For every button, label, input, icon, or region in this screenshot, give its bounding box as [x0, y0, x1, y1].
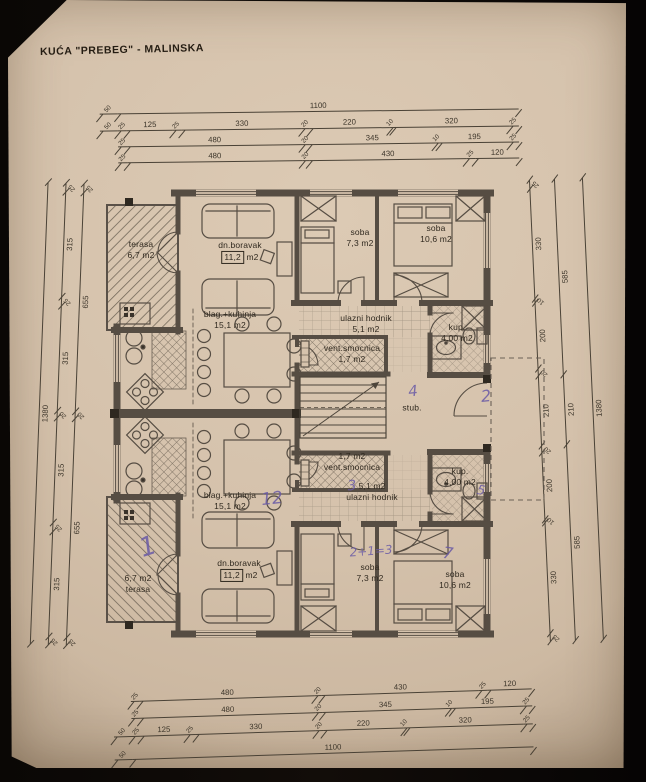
dim-segment: 25 [478, 679, 487, 691]
dim-segment: 430 [322, 679, 479, 696]
dim-value: 345 [379, 701, 392, 709]
dim-value: 25 [132, 727, 141, 736]
dim-value: 25 [523, 715, 532, 724]
dim-value: 320 [445, 117, 458, 125]
room-area: 4,00 m2 [441, 333, 473, 344]
dim-value: 345 [366, 134, 379, 142]
dim-value: 1100 [325, 743, 342, 751]
dim-value: 25 [130, 692, 139, 701]
dim-value: 10 [432, 134, 441, 143]
dim-segment: 125 [127, 119, 173, 132]
dim-value: 25 [466, 149, 475, 158]
room-label-pantry-lower: 1,7 m2 vent.smocnica [324, 451, 380, 473]
dim-segment: 50 [114, 748, 133, 761]
pen-mark-bedroom-small: 2+1=3 [349, 543, 393, 560]
sofa [202, 204, 274, 238]
paper-sheet: KUĆA "PREBEG" - MALINSKA 501100 50251252… [8, 0, 626, 768]
room-label-livingroom-lower: dn.boravak 11,2 m2 [217, 558, 261, 582]
room-label-livingroom-upper: dn.boravak 11,2 m2 [218, 240, 262, 264]
balcony-dashed-outline [491, 358, 544, 500]
room-name: terasa [125, 584, 152, 595]
dim-value: 20 [77, 410, 86, 419]
dim-segment: 10 [448, 697, 452, 709]
dim-segment: 20 [302, 117, 309, 129]
dim-value: 25 [68, 183, 77, 192]
dim-value: 25 [186, 725, 195, 734]
wardrobe [394, 273, 448, 297]
dim-segment: 330 [196, 719, 317, 735]
dim-value: 50 [104, 105, 113, 114]
dim-segment: 20 [302, 149, 309, 161]
dim-segment: 25 [61, 297, 73, 306]
room-area: 6,7 m2 [125, 573, 152, 584]
dim-value: 25 [68, 637, 77, 646]
dim-value: 25 [118, 138, 127, 147]
dim-value: 25 [63, 297, 72, 306]
dim-segment: 480 [140, 701, 315, 718]
dim-segment: 655 [66, 418, 86, 638]
room-name: soba [357, 562, 384, 573]
dim-value: 195 [481, 697, 494, 705]
dim-chain-bottom-2: 25480203451019525 [131, 694, 532, 719]
dim-chain-right-2: 585210585 [554, 178, 587, 640]
dim-value: 25 [118, 122, 127, 131]
room-name: kup. [441, 322, 473, 333]
dim-segment: 120 [475, 147, 519, 160]
dim-value: 50 [119, 750, 128, 759]
dim-segment: 25 [131, 690, 140, 702]
dim-segment: 315 [48, 531, 64, 637]
dim-value: 120 [491, 148, 504, 156]
room-label-bathroom-lower: kup. 4,00 m2 [444, 466, 476, 488]
dim-segment: 480 [140, 684, 315, 701]
dim-value: 655 [73, 521, 81, 534]
dim-segment: 220 [323, 716, 403, 731]
dim-segment: 20 [316, 719, 324, 731]
apartment-unit-mirrored [107, 413, 491, 637]
room-name: terasa [128, 239, 155, 250]
room-name: blag.+kuhinja [204, 490, 256, 501]
dim-chain-top-3: 25480203451019525 [118, 131, 519, 148]
dim-chain-bottom-3: 502512525330202201032025 [114, 712, 533, 737]
dim-value: 330 [550, 571, 558, 584]
room-label-stairs: stub. [402, 402, 421, 413]
dim-segment: 655 [75, 192, 95, 412]
dim-segment: 10 [403, 716, 407, 728]
dim-chain-bottom-1: 254802043025120 [131, 677, 532, 702]
dim-chain-top-2: 502512525330202201032025 [100, 115, 519, 132]
dim-segment: 25 [48, 637, 60, 646]
tv [260, 250, 274, 264]
dim-value: 330 [249, 723, 262, 731]
room-name: ulazni hodnik [340, 313, 392, 324]
room-name: kup. [444, 466, 476, 477]
boxed-area-value: 11,2 [220, 569, 243, 582]
dim-value: 210 [567, 403, 575, 416]
room-area: 6,7 m2 [128, 250, 155, 261]
dim-segment: 25 [65, 183, 77, 192]
room-area: 15,1 m2 [204, 501, 256, 512]
dim-value: 125 [143, 121, 156, 129]
dim-value: 320 [459, 716, 472, 724]
pantry-shelf [301, 341, 309, 367]
dim-segment: 50 [100, 119, 118, 131]
dim-chain-top-1: 501100 [100, 98, 519, 115]
dim-segment: 1100 [118, 98, 519, 115]
dim-value: 50 [118, 727, 127, 736]
dim-segment: 315 [57, 305, 73, 411]
dim-segment: 20 [315, 684, 323, 696]
dim-value: 585 [573, 536, 581, 549]
dim-value: 480 [208, 152, 221, 160]
room-label-bedroom-small-lower: soba 7,3 m2 [357, 562, 384, 584]
dim-segment: 25 [131, 707, 140, 719]
room-area: 7,3 m2 [347, 238, 374, 249]
dim-segment: 20 [302, 133, 309, 145]
dim-value: 120 [503, 680, 516, 688]
dim-value: 25 [509, 117, 518, 126]
dim-segment: 320 [407, 713, 524, 729]
dim-value: 195 [468, 133, 481, 141]
dim-value: 20 [314, 703, 323, 712]
dim-chain-left-1: 1380 [30, 183, 60, 645]
room-label-bedroom-big-lower: soba 10,6 m2 [439, 569, 471, 591]
dim-segment: 25 [118, 151, 127, 163]
dim-segment: 25 [83, 184, 95, 193]
room-name: blag.+kuhinja [204, 309, 256, 320]
floor-plan [96, 185, 551, 655]
dim-segment: 125 [141, 723, 187, 736]
dim-value: 25 [55, 523, 64, 532]
dim-segment: 25 [173, 119, 182, 131]
dim-segment: 330 [182, 117, 302, 130]
dim-segment: 585 [554, 178, 575, 374]
dim-value: 20 [301, 119, 310, 128]
room-area: 1,7 m2 [324, 354, 380, 365]
dim-segment: 430 [310, 147, 467, 161]
dim-value: 1100 [310, 102, 327, 110]
room-area: 4,00 m2 [444, 477, 476, 488]
room-name: vent.smocnica [324, 343, 380, 354]
room-label-terrace-lower: 6,7 m2 terasa [125, 573, 152, 595]
dim-value: 25 [131, 709, 140, 718]
dining-table [224, 333, 290, 387]
area-unit: m2 [246, 252, 258, 262]
dim-value: 20 [301, 151, 310, 160]
room-name: dn.boravak [217, 558, 261, 569]
dim-chain-right-3: 1380 [582, 177, 615, 639]
dim-value: 25 [522, 697, 531, 706]
dim-value: 480 [221, 705, 234, 713]
dim-value: 480 [221, 688, 234, 696]
dim-segment: 345 [309, 132, 435, 146]
dim-value: 10 [400, 719, 409, 728]
kitchen-sink [126, 330, 145, 364]
room-area: 7,3 m2 [357, 573, 384, 584]
dim-value: 25 [118, 154, 127, 163]
boxed-area-value: 11,2 [221, 251, 244, 264]
pen-mark-stairs: 4 [407, 382, 418, 401]
dim-segment: 1380 [30, 183, 60, 645]
staircase [300, 377, 386, 438]
dim-value: 1380 [595, 399, 604, 417]
dim-value: 25 [172, 121, 181, 130]
room-name: soba [347, 227, 374, 238]
room-label-bedroom-small-upper: soba 7,3 m2 [347, 227, 374, 249]
terrace-floor [107, 205, 178, 330]
dim-value: 1380 [41, 405, 49, 423]
nightstand [338, 281, 351, 293]
stairhall-floor [386, 306, 430, 372]
dim-value: 480 [208, 136, 221, 144]
room-area: 11,2 m2 [218, 251, 262, 264]
dim-chain-left-3: 256552065525 [66, 184, 96, 646]
dim-segment: 25 [550, 633, 562, 642]
room-label-terrace-upper: terasa 6,7 m2 [128, 239, 155, 261]
dim-value: 315 [53, 577, 61, 590]
dim-segment: 25 [510, 131, 519, 143]
dim-value: 10 [386, 118, 395, 127]
dim-value: 220 [343, 118, 356, 126]
dim-value: 10 [445, 699, 454, 708]
dim-segment: 50 [100, 102, 118, 114]
dim-segment: 10 [389, 116, 393, 128]
dim-value: 585 [561, 270, 569, 283]
pen-mark-kitchen: 12 [260, 488, 284, 510]
dim-value: 315 [57, 464, 65, 477]
wall-post [125, 198, 133, 206]
dim-chain-top-4: 254802043025120 [118, 147, 519, 164]
dim-segment: 25 [118, 135, 127, 147]
room-name: soba [439, 569, 471, 580]
dim-segment: 320 [393, 115, 510, 128]
dim-segment: 1380 [582, 177, 615, 639]
dim-value: 220 [357, 719, 370, 727]
dim-segment: 20 [75, 411, 87, 418]
dim-segment: 25 [186, 723, 195, 735]
dim-segment: 10 [435, 131, 439, 143]
party-wall [110, 409, 301, 418]
room-label-kitchen-lower: blag.+kuhinja 15,1 m2 [204, 490, 256, 512]
room-label-pantry-upper: vent.smocnica 1,7 m2 [324, 343, 380, 365]
tv-cabinet [277, 242, 292, 276]
stairs-direction-arrow [371, 382, 379, 389]
dim-segment: 210 [563, 374, 578, 445]
room-name: soba [420, 223, 452, 234]
area-unit: m2 [245, 570, 257, 580]
room-area: 5,1 m2 [340, 324, 392, 335]
dim-segment: 480 [127, 149, 302, 163]
dim-segment: 220 [309, 116, 389, 129]
dim-value: 20 [301, 135, 310, 144]
dim-value: 330 [235, 120, 248, 128]
dim-value: 315 [66, 238, 74, 251]
dim-segment: 585 [566, 444, 587, 640]
dim-segment: 20 [315, 701, 323, 713]
dim-segment: 25 [510, 115, 519, 127]
dim-value: 25 [478, 681, 487, 690]
dim-value: 125 [157, 725, 170, 733]
dim-value: 20 [59, 410, 68, 419]
room-area: 15,1 m2 [204, 320, 256, 331]
room-area: 10,6 m2 [439, 580, 471, 591]
dim-segment: 120 [488, 677, 532, 690]
dim-segment: 25 [466, 147, 475, 159]
dim-segment: 25 [523, 712, 532, 724]
dim-segment: 315 [61, 192, 77, 298]
room-area: 10,6 m2 [420, 234, 452, 245]
dim-chain-left-2: 2531525315203152531525 [48, 183, 78, 645]
dim-value: 20 [313, 686, 322, 695]
room-label-hallway-upper: ulazni hodnik 5,1 m2 [340, 313, 392, 335]
dim-segment: 345 [322, 697, 448, 713]
room-label-bedroom-big-upper: soba 10,6 m2 [420, 223, 452, 245]
room-name: stub. [402, 402, 421, 413]
dim-value: 25 [86, 184, 95, 193]
room-label-kitchen-upper: blag.+kuhinja 15,1 m2 [204, 309, 256, 331]
dim-segment: 195 [439, 131, 510, 144]
dim-segment: 25 [132, 725, 141, 737]
dim-segment: 315 [52, 417, 68, 523]
dim-value: 25 [50, 636, 59, 645]
drawing-title: KUĆA "PREBEG" - MALINSKA [40, 42, 204, 58]
kitchen-counter [152, 331, 186, 389]
dim-segment: 480 [127, 133, 302, 147]
dim-segment: 25 [523, 694, 532, 706]
room-label-bathroom-upper: kup. 4,00 m2 [441, 322, 473, 344]
dim-segment: 20 [57, 411, 69, 418]
dim-value: 655 [82, 295, 90, 308]
room-name: dn.boravak [218, 240, 262, 251]
dim-segment: 25 [66, 637, 78, 646]
dim-value: 50 [104, 122, 113, 131]
pen-mark-hallway: 3 [347, 478, 358, 495]
dim-value: 25 [509, 133, 518, 142]
wardrobe [301, 196, 336, 221]
wardrobe [456, 196, 485, 221]
dim-value: 430 [381, 150, 394, 158]
bar-stools [198, 330, 211, 397]
room-area: 1,7 m2 [324, 451, 380, 462]
dim-value: 25 [552, 633, 561, 642]
room-name: vent.smocnica [324, 462, 380, 473]
scanned-floor-plan-photo: { "title": "KUĆA \"PREBEG\" - MALINSKA",… [0, 0, 646, 768]
dim-value: 315 [62, 352, 70, 365]
room-area: 11,2 m2 [217, 569, 261, 582]
dim-segment: 25 [52, 523, 64, 532]
dim-segment: 50 [114, 725, 133, 738]
dim-segment: 1100 [133, 735, 534, 760]
dim-value: 430 [394, 683, 407, 691]
dim-segment: 25 [118, 119, 127, 131]
dim-chain-bottom-4: 501100 [114, 735, 533, 760]
dim-segment: 195 [452, 695, 523, 709]
dim-value: 20 [315, 721, 324, 730]
pen-mark-landing: 2 [480, 386, 492, 406]
